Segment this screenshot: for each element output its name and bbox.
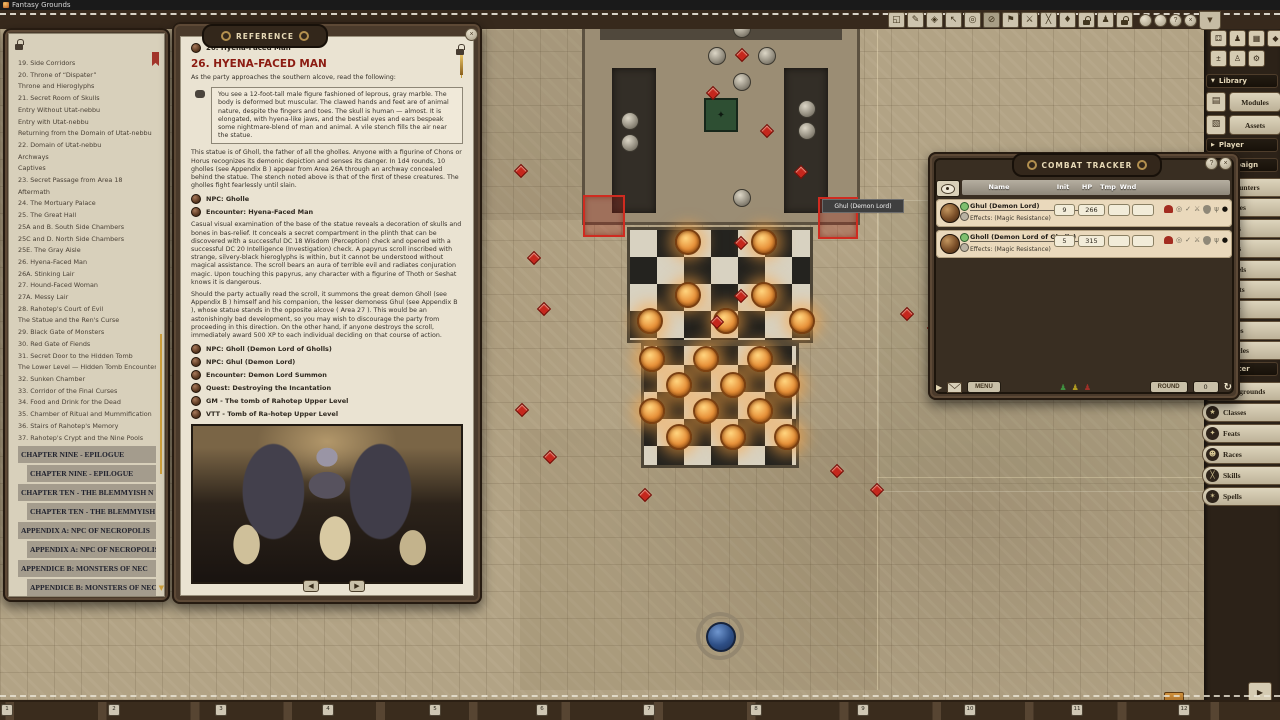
npc-token[interactable] xyxy=(758,47,776,65)
toc-entry[interactable]: Aftermath xyxy=(18,187,156,199)
record-link[interactable]: NPC: Ghul (Demon Lord) xyxy=(191,357,463,367)
os-title-bar: Fantasy Grounds xyxy=(0,0,1280,10)
map-room-patch xyxy=(470,30,600,220)
tab-icon: ☻ xyxy=(1206,448,1219,461)
status-hostile-icon[interactable]: ♟ xyxy=(1084,383,1091,392)
mask-icon[interactable]: ◈ xyxy=(926,12,943,28)
toc-entry[interactable]: The Lower Level — Hidden Tomb Encounter xyxy=(18,362,156,374)
library-icon: ▤ xyxy=(1206,92,1226,112)
toc-entry[interactable]: 33. Corridor of the Final Curses xyxy=(18,386,156,398)
toc-paper: 19. Side Corridors20. Throne of “Dispate… xyxy=(8,33,165,597)
menu-button[interactable]: MENU xyxy=(967,381,1001,393)
record-link[interactable]: Quest: Destroying the Incantation xyxy=(191,383,463,393)
sidebar-character-tab[interactable]: ✶ Spells xyxy=(1202,487,1280,506)
summon-token[interactable] xyxy=(693,398,719,424)
summon-token[interactable] xyxy=(747,398,773,424)
hotkey-slot-number[interactable]: 8 xyxy=(750,704,762,716)
toc-entry[interactable]: 26. Hyena-Faced Man xyxy=(18,257,156,269)
hotkey-slot-number[interactable]: 5 xyxy=(429,704,441,716)
red-marker-token[interactable] xyxy=(537,302,551,316)
pin-icon[interactable]: ♦ xyxy=(1059,12,1076,28)
select-icon[interactable]: ↖ xyxy=(945,12,962,28)
attack-pointer-icon[interactable]: ⚔ xyxy=(1021,12,1038,28)
Ghul (Demon Lord)[interactable]: Ghul (Demon Lord) Effects: (Magic Resist… xyxy=(936,199,1232,227)
hotkey-slot-number[interactable]: 7 xyxy=(643,704,655,716)
hotbar-page-close[interactable]: × xyxy=(1184,14,1197,27)
sidebar-section-player[interactable]: ▶ Player xyxy=(1206,138,1278,152)
space-badge[interactable] xyxy=(960,243,969,252)
sidebar-scroll-arrow[interactable]: ▶ xyxy=(1248,682,1272,702)
tab-icon: ★ xyxy=(1206,406,1219,419)
envelope-icon[interactable] xyxy=(947,382,962,393)
summon-token[interactable] xyxy=(747,346,773,372)
summon-token[interactable] xyxy=(666,424,692,450)
summon-token[interactable] xyxy=(774,424,800,450)
lock-icon[interactable] xyxy=(1116,12,1133,28)
summon-token[interactable] xyxy=(675,229,701,255)
summon-token[interactable] xyxy=(675,282,701,308)
toc-entry[interactable]: Returning from the Domain of Utat-nebbu xyxy=(18,128,156,140)
npc-token[interactable] xyxy=(733,73,751,91)
token-lock-icon[interactable] xyxy=(1078,12,1095,28)
hotbar-page-3[interactable]: ? xyxy=(1169,14,1182,27)
toc-entry[interactable]: APPENDIX A: NPC OF NECROPOLIS xyxy=(18,522,156,539)
record-pin-icon xyxy=(191,194,201,204)
paragraph: This statue is of Gholl, the father of a… xyxy=(191,149,463,190)
tab-icon: ✦ xyxy=(1206,427,1219,440)
toc-entry[interactable]: APPENDICE B: MONSTERS OF NECRO xyxy=(27,579,156,596)
toc-entry[interactable]: 23. Secret Passage from Area 18 xyxy=(18,175,156,187)
clear-target-icon[interactable]: ⊘ xyxy=(983,12,1000,28)
visibility-icon[interactable]: ✓ xyxy=(1185,204,1191,214)
npc-token[interactable] xyxy=(798,100,816,118)
close-icon[interactable]: × xyxy=(465,28,478,41)
target-icon[interactable]: ◎ xyxy=(964,12,981,28)
tracker-column-header: Name Init HP Tmp Wnd xyxy=(962,180,1230,195)
reset-icon[interactable]: ↻ xyxy=(1224,382,1232,393)
summon-token[interactable] xyxy=(751,282,777,308)
record-pin-icon xyxy=(191,357,201,367)
round-value[interactable]: 0 xyxy=(1193,381,1219,394)
hotkey-slot-number[interactable]: 6 xyxy=(536,704,548,716)
faction-badge[interactable] xyxy=(960,202,969,211)
sidebar-character-tab[interactable]: ☻ Races xyxy=(1202,445,1280,464)
map-pit-east xyxy=(784,68,828,213)
toc-entry[interactable]: 25E. The Gray Aisle xyxy=(18,245,156,257)
Gholl (Demon Lord of Gholls)[interactable]: Gholl (Demon Lord of Gholls) Effects: (M… xyxy=(936,230,1232,258)
hotkey-slot-number[interactable]: 3 xyxy=(215,704,227,716)
page-prev-button[interactable]: ◀ xyxy=(303,580,319,592)
toc-entry[interactable]: 31. Secret Door to the Hidden Tomb xyxy=(18,351,156,363)
toc-entry[interactable]: 20. Throne of “Dispater” xyxy=(18,70,156,82)
armor-icon[interactable] xyxy=(1164,205,1173,213)
toc-entry[interactable]: CHAPTER TEN - THE BLEMMYISH N xyxy=(18,484,156,501)
record-link[interactable]: NPC: Gholl (Demon Lord of Gholls) xyxy=(191,344,463,354)
map-grid-line xyxy=(877,30,878,690)
toc-entry[interactable]: 27. Hound-Faced Woman xyxy=(18,280,156,292)
init-field[interactable]: 5 xyxy=(1054,235,1075,247)
party-vision-icon[interactable]: ♟ xyxy=(1097,12,1114,28)
toc-entry[interactable]: 19. Side Corridors xyxy=(18,58,156,70)
map-room-patch xyxy=(520,430,880,690)
chevron-right-icon: ▶ xyxy=(1211,142,1215,148)
hotkey-slot-number[interactable]: 11 xyxy=(1071,704,1083,716)
draw-icon[interactable]: ✎ xyxy=(907,12,924,28)
red-marker-token[interactable] xyxy=(515,403,529,417)
statue-marker[interactable]: ✦ xyxy=(704,98,738,132)
toc-entry[interactable]: 25. The Great Hall xyxy=(18,210,156,222)
summon-token[interactable] xyxy=(720,424,746,450)
hotbar-page-2[interactable] xyxy=(1154,14,1167,27)
token-orb-icon[interactable]: ● xyxy=(1222,235,1228,245)
toc-entry[interactable]: 32. Sunken Chamber xyxy=(18,374,156,386)
sidebar-section-library[interactable]: ▼ Library xyxy=(1206,74,1278,88)
next-turn-icon[interactable]: ▶ xyxy=(936,383,942,392)
record-pin-icon xyxy=(191,344,201,354)
toc-entry[interactable]: The Statue and the Ren's Curse xyxy=(18,315,156,327)
npc-token[interactable] xyxy=(798,122,816,140)
combat-tracker-window[interactable]: Combat Tracker ? × Name Init HP Tmp Wnd … xyxy=(928,152,1240,400)
summon-token[interactable] xyxy=(789,308,815,334)
toc-entry[interactable]: APPENDIX A: NPC OF NECROPOLIS xyxy=(27,541,156,558)
summon-token[interactable] xyxy=(751,229,777,255)
tool-calendar-icon[interactable]: ▦ xyxy=(1248,30,1265,47)
tool-party-icon[interactable]: ♟ xyxy=(1229,30,1246,47)
toc-entry[interactable]: Captives xyxy=(18,163,156,175)
toc-entry[interactable]: 28. Rahotep's Court of Evil xyxy=(18,304,156,316)
sidebar-character-tab[interactable]: ╳ Skills xyxy=(1202,466,1280,485)
toc-entry[interactable]: 25A and B. South Side Chambers xyxy=(18,222,156,234)
toc-entry[interactable]: 35. Chamber of Ritual and Mummification xyxy=(18,409,156,421)
round-button[interactable]: ROUND xyxy=(1150,381,1188,393)
defense-icon[interactable] xyxy=(1203,205,1211,214)
token-orb-icon[interactable]: ● xyxy=(1222,204,1228,214)
claw-icon[interactable]: ψ xyxy=(1214,204,1219,214)
record-pin-icon[interactable] xyxy=(191,43,201,53)
red-marker-token[interactable] xyxy=(527,251,541,265)
toc-entry[interactable]: 22. Domain of Utat-nebbu xyxy=(18,140,156,152)
toc-window[interactable]: 19. Side Corridors20. Throne of “Dispate… xyxy=(3,28,170,602)
claw-icon[interactable]: ψ xyxy=(1214,235,1219,245)
npc-token[interactable] xyxy=(621,112,639,130)
toc-entry[interactable]: Archways xyxy=(18,152,156,164)
toc-entry[interactable]: 25C and D. North Side Chambers xyxy=(18,234,156,246)
sidebar-filter-tab[interactable]: ▼ xyxy=(1199,11,1221,30)
fantasy-grounds-app: Fantasy Grounds ✦ Ghul (Demon Lord) ◱✎◈↖… xyxy=(0,0,1280,720)
hotkey-slot-number[interactable]: 2 xyxy=(108,704,120,716)
window-title-plate[interactable]: Combat Tracker xyxy=(1012,153,1162,177)
tab-icon: ╳ xyxy=(1206,469,1219,482)
scroll-down-icon[interactable]: ▼ xyxy=(159,584,164,592)
toc-entry[interactable]: 29. Black Gate of Monsters xyxy=(18,327,156,339)
toc-entry[interactable]: 21. Secret Room of Skulls xyxy=(18,93,156,105)
toc-entry[interactable]: CHAPTER TEN - THE BLEMMYISH NO xyxy=(27,503,156,520)
lock-icon[interactable] xyxy=(455,43,465,55)
summon-token[interactable] xyxy=(637,308,663,334)
combatant-effects[interactable]: Effects: (Magic Resistance) xyxy=(970,246,1051,253)
visibility-toggle[interactable] xyxy=(936,180,960,197)
record-pin-icon xyxy=(191,207,201,217)
attack-icon[interactable]: ⚔ xyxy=(1194,204,1200,214)
space-badge[interactable] xyxy=(960,212,969,221)
toc-entry[interactable]: 24. The Mortuary Palace xyxy=(18,198,156,210)
hp-field[interactable]: 266 xyxy=(1078,204,1105,216)
eye-icon xyxy=(941,184,955,194)
hotkey-bar[interactable]: 123456789101112 xyxy=(0,700,1280,720)
paragraph: Casual visual examination of the base of… xyxy=(191,221,463,287)
help-icon[interactable]: ? xyxy=(1205,157,1218,170)
tool-modifiers-icon[interactable]: ± xyxy=(1210,50,1227,67)
app-icon xyxy=(3,2,9,8)
toc-entry[interactable]: 27A. Messy Lair xyxy=(18,292,156,304)
status-friendly-icon[interactable]: ♟ xyxy=(1059,383,1066,392)
player-token[interactable] xyxy=(706,622,736,652)
stitch-divider xyxy=(0,695,1280,697)
clear-pointers-icon[interactable]: ╳ xyxy=(1040,12,1057,28)
toc-entry[interactable]: APPENDICE B: MONSTERS OF NEC xyxy=(18,560,156,577)
hotkey-slot-number[interactable]: 9 xyxy=(857,704,869,716)
summon-token[interactable] xyxy=(639,398,665,424)
paragraph: As the party approaches the southern alc… xyxy=(191,74,463,82)
faction-badge[interactable] xyxy=(960,233,969,242)
toc-entry[interactable]: Entry Without Utat-nebbu xyxy=(18,105,156,117)
record-pin-icon xyxy=(191,383,201,393)
pointer-icon[interactable]: ⚑ xyxy=(1002,12,1019,28)
hotkey-slot-number[interactable]: 10 xyxy=(964,704,976,716)
actor-portrait[interactable] xyxy=(940,203,960,223)
defense-icon[interactable] xyxy=(1203,236,1211,245)
tracker-bottom-bar: ▶ MENU ♟ ♟ ♟ ROUND 0 ↻ xyxy=(936,380,1232,394)
window-title-plate[interactable]: Reference xyxy=(202,24,328,48)
record-pin-icon xyxy=(191,370,201,380)
npc-token[interactable] xyxy=(621,134,639,152)
wnd-field[interactable] xyxy=(1132,235,1154,247)
record-pin-icon xyxy=(191,396,201,406)
sidebar-modules-button[interactable]: ▤ Modules xyxy=(1206,92,1280,112)
record-link[interactable]: GM - The tomb of Rahotep Upper Level xyxy=(191,396,463,406)
toc-entry[interactable]: 34. Food and Drink for the Dead xyxy=(18,397,156,409)
summon-token[interactable] xyxy=(639,346,665,372)
record-link[interactable]: NPC: Gholle xyxy=(191,194,463,204)
app-title: Fantasy Grounds xyxy=(12,1,71,9)
tool-die-icon[interactable]: ◆ xyxy=(1267,30,1280,47)
tab-icon: ✶ xyxy=(1206,490,1219,503)
speech-bubble-icon xyxy=(195,90,205,98)
visibility-icon[interactable]: ✓ xyxy=(1185,235,1191,245)
tmp-field[interactable] xyxy=(1108,235,1130,247)
sidebar-assets-button[interactable]: ▧ Assets xyxy=(1206,115,1280,135)
armor-icon[interactable] xyxy=(1164,236,1173,244)
tool-options-icon[interactable]: ⚙ xyxy=(1248,50,1265,67)
toc-entry[interactable]: Entry with Utat-nebbu xyxy=(18,117,156,129)
map-grid-line xyxy=(877,477,1210,478)
record-link[interactable]: Encounter: Hyena-Faced Man xyxy=(191,207,463,217)
targeting-icon[interactable]: ◎ xyxy=(1176,204,1182,214)
paragraph: Should the party actually read the scrol… xyxy=(191,291,463,340)
actor-portrait[interactable] xyxy=(940,234,960,254)
npc-token[interactable] xyxy=(733,189,751,207)
close-icon[interactable]: × xyxy=(1219,157,1232,170)
summon-token[interactable] xyxy=(666,372,692,398)
hp-field[interactable]: 315 xyxy=(1078,235,1105,247)
init-field[interactable]: 9 xyxy=(1054,204,1075,216)
scrollbar-thumb[interactable] xyxy=(160,334,162,474)
toc-entry[interactable]: CHAPTER NINE - EPILOGUE xyxy=(27,465,156,482)
wnd-field[interactable] xyxy=(1132,204,1154,216)
summon-token[interactable] xyxy=(774,372,800,398)
fullscreen-icon[interactable]: ◱ xyxy=(888,12,905,28)
record-pin-icon xyxy=(191,409,201,419)
toc-entry[interactable]: 36. Stairs of Rahotep's Memory xyxy=(18,421,156,433)
hotbar-page-1[interactable] xyxy=(1139,14,1152,27)
record-link[interactable]: Encounter: Demon Lord Summon xyxy=(191,370,463,380)
page-next-button[interactable]: ▶ xyxy=(349,580,365,592)
summon-token[interactable] xyxy=(720,372,746,398)
token-tooltip: Ghul (Demon Lord) xyxy=(822,199,904,213)
hotkey-slot-number[interactable]: 12 xyxy=(1178,704,1190,716)
tool-dice-icon[interactable]: ⚃ xyxy=(1210,30,1227,47)
dagger-bookmark-icon[interactable] xyxy=(460,55,463,75)
toc-entry[interactable]: 37. Rahotep's Crypt and the Nine Pools xyxy=(18,433,156,445)
artwork-demons xyxy=(191,424,463,584)
npc-token[interactable] xyxy=(708,47,726,65)
tool-identities-icon[interactable]: ♙ xyxy=(1229,50,1246,67)
attack-icon[interactable]: ⚔ xyxy=(1194,235,1200,245)
status-neutral-icon[interactable]: ♟ xyxy=(1072,383,1079,392)
tmp-field[interactable] xyxy=(1108,204,1130,216)
lock-icon[interactable] xyxy=(14,38,24,50)
reference-paper: 26. Hyena-Faced Man 26. HYENA-FACED MAN … xyxy=(180,36,474,596)
hotkey-slot-number[interactable]: 4 xyxy=(322,704,334,716)
toc-entry[interactable]: 26A. Stinking Lair xyxy=(18,269,156,281)
targeting-icon[interactable]: ◎ xyxy=(1176,235,1182,245)
toc-entry[interactable]: Throne and Hieroglyphs xyxy=(18,81,156,93)
chevron-down-icon: ▼ xyxy=(1211,78,1215,84)
page-title: 26. HYENA-FACED MAN xyxy=(191,58,463,70)
read-aloud-box: You see a 12-foot-tall male figure fashi… xyxy=(211,87,463,144)
summon-token[interactable] xyxy=(693,346,719,372)
library-icon: ▧ xyxy=(1206,115,1226,135)
sidebar-character-tab[interactable]: ✦ Feats xyxy=(1202,424,1280,443)
record-link[interactable]: VTT - Tomb of Ra-hotep Upper Level xyxy=(191,409,463,419)
toc-entry[interactable]: 30. Red Gate of Fiends xyxy=(18,339,156,351)
target-highlight-square[interactable] xyxy=(583,195,625,237)
combatant-effects[interactable]: Effects: (Magic Resistance) xyxy=(970,215,1051,222)
map-toolbar: ◱✎◈↖◎⊘⚑⚔╳♦♟ ?× ▼ xyxy=(888,11,1221,29)
sidebar-character-tab[interactable]: ★ Classes xyxy=(1202,403,1280,422)
toc-entry[interactable]: CHAPTER NINE - EPILOGUE xyxy=(18,446,156,463)
hotkey-slot-number[interactable]: 1 xyxy=(1,704,13,716)
reference-window[interactable]: Reference × 26. Hyena-Faced Man 26. HYEN… xyxy=(172,22,482,604)
